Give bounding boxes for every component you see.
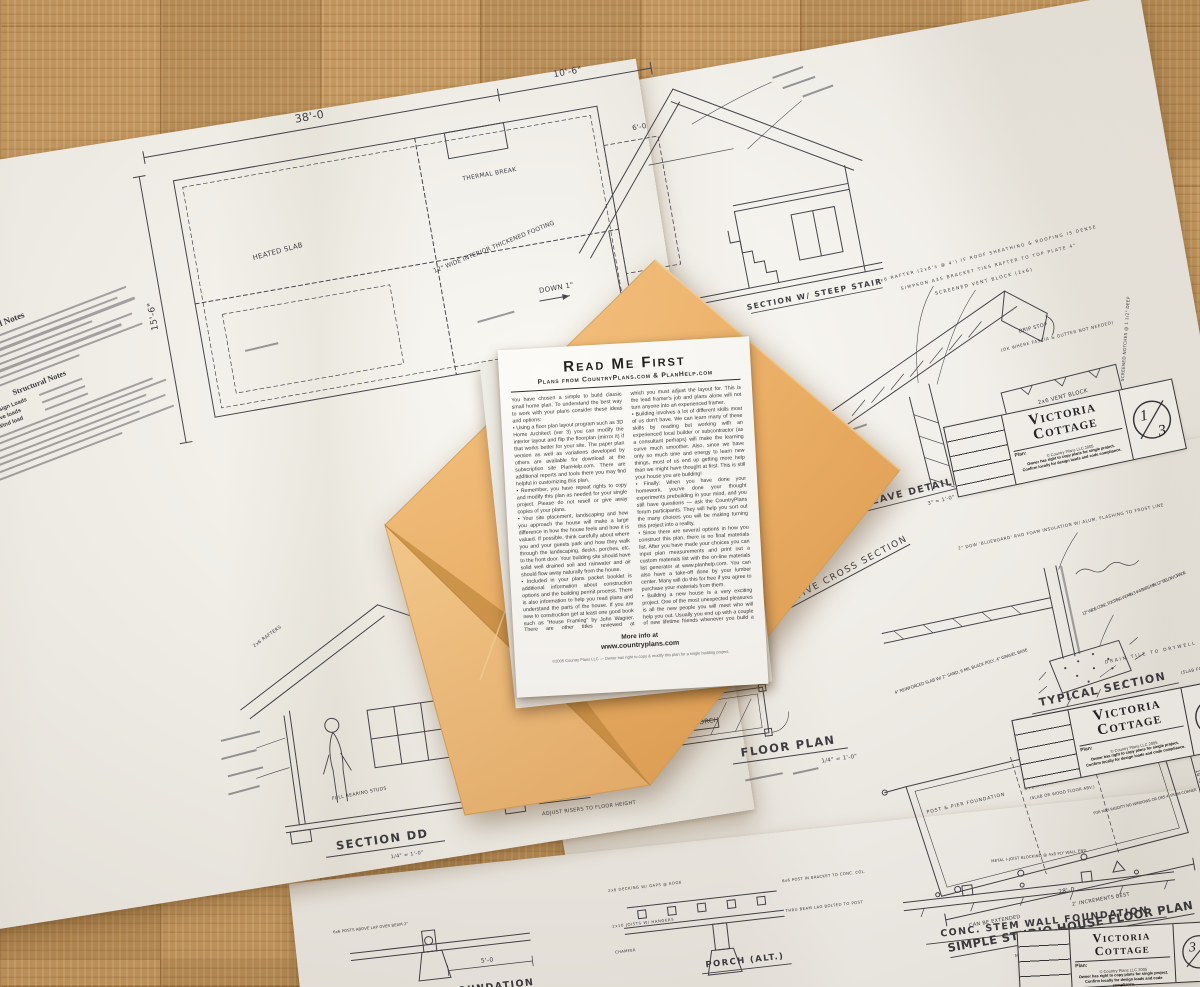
typical-section-sub: (SLAB FOUND.)	[1180, 663, 1200, 675]
title-block-revision-rows	[1018, 930, 1073, 987]
section-dd-scale: 1/4" = 1'-0"	[390, 850, 424, 861]
plan-title: Victoria Cottage	[1073, 926, 1170, 962]
post-pier-caption: POST & PIER FOUNDATION	[362, 977, 535, 987]
heated-slab-label: HEATED SLAB	[252, 241, 304, 262]
post-bracket-note: 6x6 POST IN BRACKET TO CONC. COL.	[782, 869, 866, 883]
dim-15-6: 15'-6"	[146, 301, 161, 331]
plan-label: Plan:	[1075, 963, 1088, 970]
booklet-column-1: You have chosen a simple to build classi…	[511, 391, 635, 633]
thermal-break-label: THERMAL BREAK	[461, 166, 518, 183]
sheet-number: 1	[1139, 406, 1150, 424]
sheet-number-circle: 3 3	[1174, 922, 1200, 982]
rafters-note: 2x6 RAFTERS	[252, 624, 283, 649]
decking-note: 2x6 DECKING W/ GAPS @ EDGE	[608, 880, 682, 893]
thru-beam-note: THRU BEAM LAG BOLTED TO POST	[784, 899, 863, 913]
dim-38: 38'-0	[294, 108, 325, 126]
photo-scene: SECTION W/ STEEP STAIR 2x6 RAFTER (2x8's…	[0, 0, 1200, 987]
porch-alt-caption: PORCH (ALT.)	[705, 951, 785, 970]
posts-above-note: 6x6 POSTS ABOVE LAP OVER BEAM 2"	[333, 921, 409, 935]
post-pier-zone-label: POST & PIER FOUNDATION	[926, 792, 1005, 816]
plan-label: Plan:	[1014, 450, 1027, 458]
sheet-number: 3	[1187, 939, 1196, 954]
blocking-note: METAL I-JOIST BLOCKING @ 4x8 PLY WALL EN…	[991, 848, 1087, 864]
conc-footing-note: 12" WIDE CONC. FOOTING W/ MIN 3 #4 BARS …	[1081, 570, 1187, 617]
pier-dim-5: 5'-0	[481, 956, 494, 964]
read-me-first-booklet: Read Me First Plans from CountryPlans.co…	[497, 336, 768, 698]
plan-label: Plan:	[1080, 745, 1093, 753]
dim-10-6: 10'-6"	[553, 65, 583, 80]
studio-dim-16: 16'-0	[1194, 769, 1200, 784]
notches-note: SCREENED NOTCHES @ 1 1/2" DEEP	[1120, 296, 1131, 381]
dim-6: 6'-0	[632, 122, 648, 132]
drain-tile-note: DRAIN TILE TO DRYWELL	[1104, 641, 1195, 666]
fascia-note: (OK WHERE FASCIA & GUTTER NOT NEEDED)	[1000, 320, 1114, 353]
booklet-column-2: which you must adjust the layout for. Th…	[630, 385, 754, 627]
title-block-3: Victoria Cottage Plan: © Country Plans L…	[1017, 921, 1200, 987]
chamfer-note: CHAMFER	[615, 947, 636, 954]
